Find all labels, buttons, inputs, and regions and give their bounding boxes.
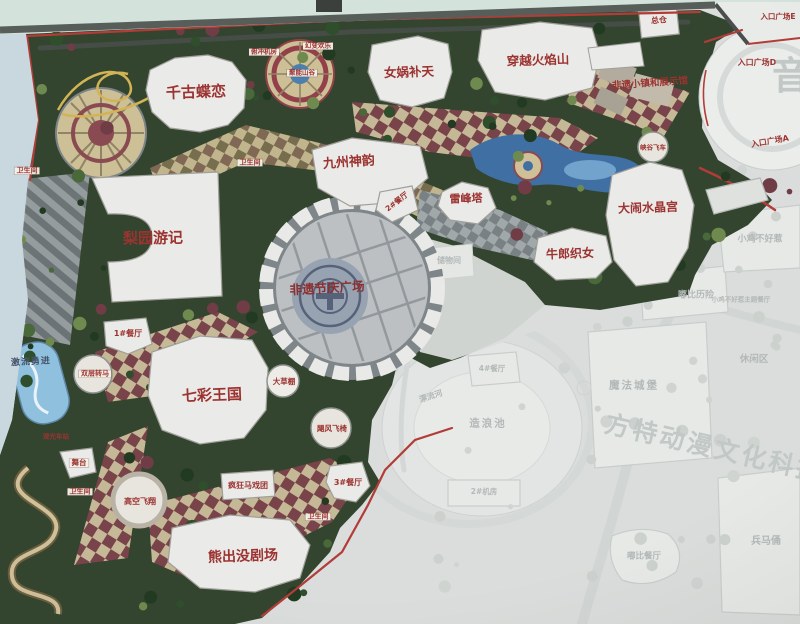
label-gaokong-feixiang: 高空飞翔 bbox=[124, 498, 156, 506]
label-fengkuang-maxituan: 疯狂马戏团 bbox=[228, 482, 268, 490]
label-danao-shuijinggong: 大闹水晶宫 bbox=[618, 201, 678, 216]
label-entrance-e: 入口广场E bbox=[760, 13, 795, 21]
label-entrance-d: 入口广场D bbox=[738, 59, 777, 67]
label-qicai-wangguo: 七彩王国 bbox=[182, 387, 243, 405]
label-machine-room-2: 2#机房 bbox=[471, 488, 498, 496]
label-wutai: 舞台 bbox=[70, 459, 89, 467]
label-juneng-shangu: 聚能山谷 bbox=[287, 70, 317, 77]
radial-plaza-west bbox=[56, 88, 146, 178]
label-restroom-nw: 卫生间 bbox=[15, 167, 40, 174]
label-xiagu-feiche: 峡谷飞车 bbox=[640, 145, 666, 152]
label-huanbian-huanle: 幻变欢乐 bbox=[303, 43, 333, 50]
label-niulang-zhinv: 牛郎织女 bbox=[546, 247, 594, 261]
label-restroom-s: 卫生间 bbox=[306, 513, 331, 520]
watermark-yin: 音 bbox=[772, 57, 800, 97]
label-chuwujian: 储物间 bbox=[437, 257, 461, 265]
label-bingmayong: 兵马俑 bbox=[751, 537, 781, 548]
label-jufeng-feiyi: 飓风飞椅 bbox=[317, 425, 347, 433]
park-map-graphic bbox=[0, 0, 800, 624]
label-dubi-lixian: 嘟比历险 bbox=[678, 291, 714, 300]
label-feiyi-plaza: 非遗节庆广场 bbox=[289, 279, 365, 296]
label-restroom-sw: 卫生间 bbox=[68, 488, 93, 495]
label-zongcang: 总仓 bbox=[651, 16, 668, 25]
label-restaurant-1: 1#餐厅 bbox=[114, 330, 142, 338]
label-dacaopeng: 大草棚 bbox=[273, 378, 296, 386]
label-fuchong-jifang: 俯冲机房 bbox=[249, 49, 279, 56]
label-restaurant-3: 3#餐厅 bbox=[334, 479, 362, 487]
label-leifengta: 雷峰塔 bbox=[449, 193, 482, 206]
label-xiaoji-restaurant: 小鸡不好惹主题餐厅 bbox=[712, 297, 771, 304]
label-dubi-canting: 嘟比餐厅 bbox=[627, 553, 661, 562]
label-xiaoji-buhaore: 小鸡不好惹 bbox=[737, 235, 782, 244]
label-guanguang-chezhan: 观光车站 bbox=[43, 434, 69, 441]
label-chuanyue-huoyanshan: 穿越火焰山 bbox=[507, 52, 570, 67]
label-shuangceng-zhuanma: 双层转马 bbox=[79, 370, 111, 377]
label-liyuan-youji: 梨园游记 bbox=[123, 231, 183, 248]
label-mofa-chengbao: 魔法城堡 bbox=[609, 380, 659, 391]
label-restaurant-4: 4#餐厅 bbox=[479, 365, 506, 373]
label-nvwa-butian: 女娲补天 bbox=[384, 65, 434, 80]
park-map-photo: 千古蝶恋 女娲补天 穿越火焰山 九州神韵 梨园游记 非遗节庆广场 雷峰塔 牛郎织… bbox=[0, 0, 800, 624]
label-qiangu-dielian: 千古蝶恋 bbox=[166, 84, 227, 102]
label-xiuxianqu: 休闲区 bbox=[740, 355, 769, 365]
label-restroom-center: 卫生间 bbox=[238, 159, 263, 166]
label-xiongchumo-juchang: 熊出没剧场 bbox=[208, 548, 278, 565]
label-zaolangchi: 造浪池 bbox=[469, 418, 507, 429]
